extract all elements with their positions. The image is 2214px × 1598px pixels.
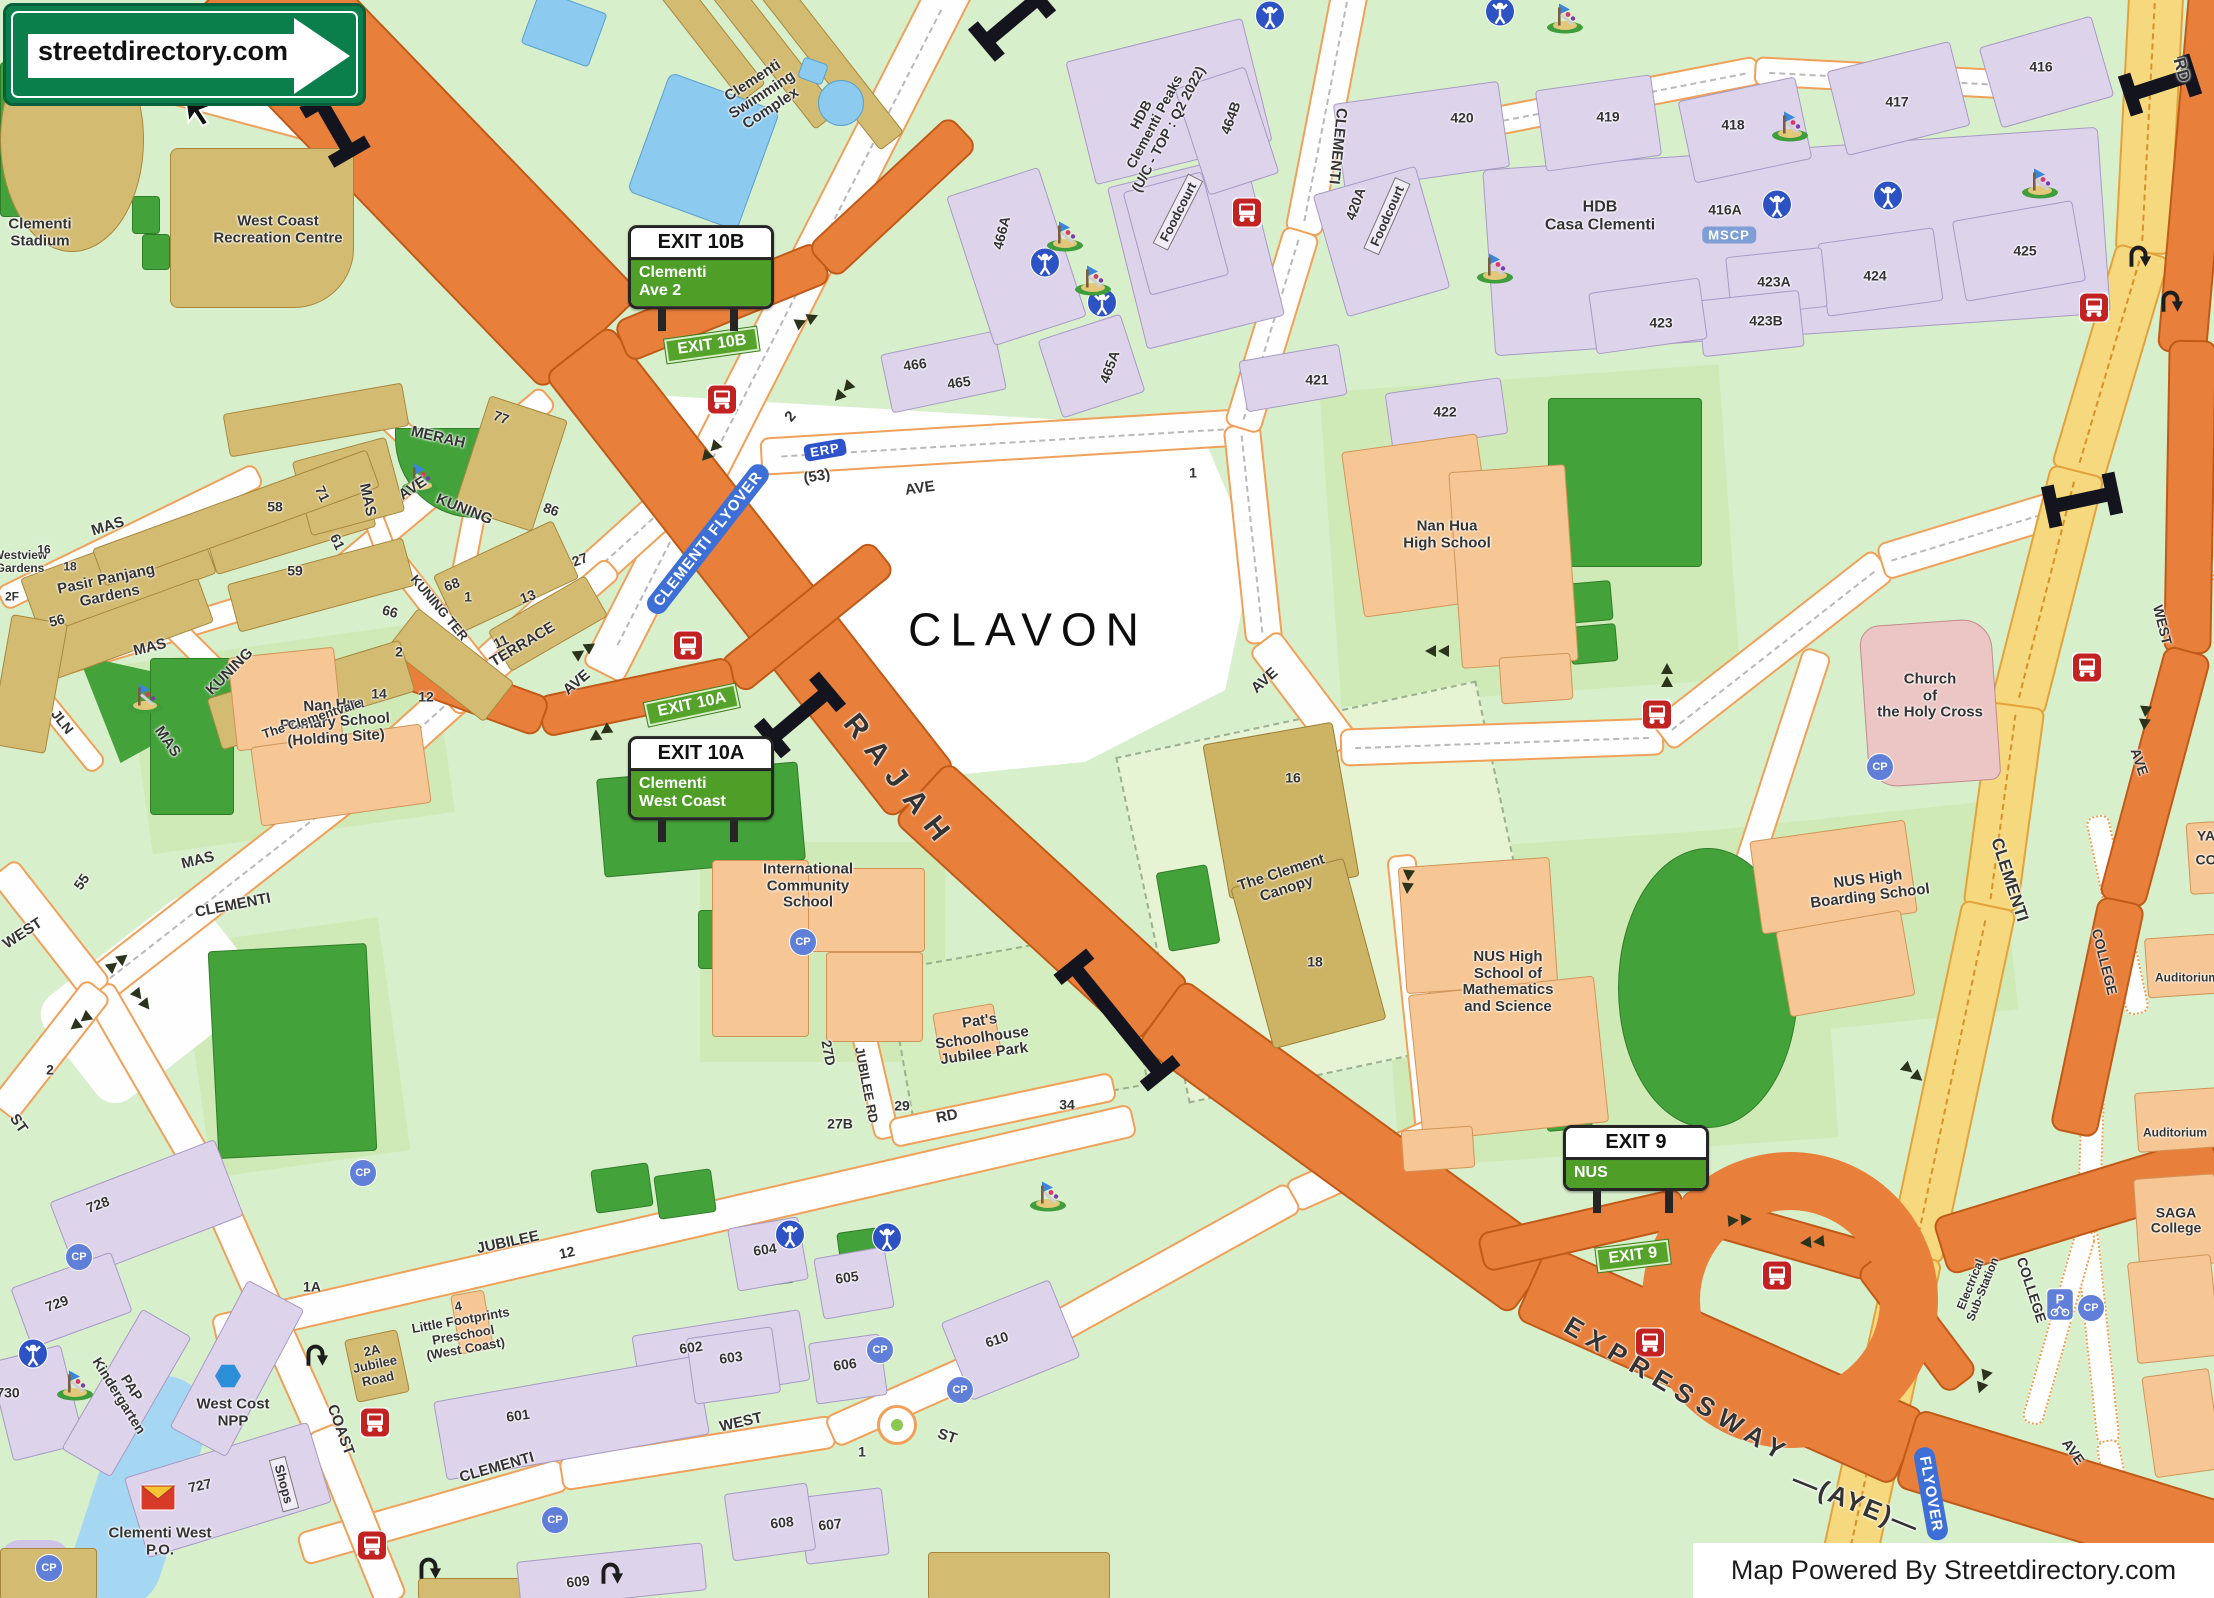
map-label: 18 <box>63 560 76 573</box>
community-icon[interactable] <box>1873 181 1903 216</box>
building <box>1401 1126 1476 1173</box>
exit-sign-post <box>730 820 738 842</box>
map-label: 18 <box>1307 954 1323 969</box>
road-center-line <box>2141 0 2156 241</box>
streetdirectory-logo[interactable]: streetdirectory.com <box>3 3 366 106</box>
bus-stop-icon[interactable] <box>360 1408 390 1443</box>
map-label: 604 <box>752 1241 777 1259</box>
roundabout <box>877 1405 917 1445</box>
building <box>1037 314 1145 419</box>
exit-sign: EXIT 10AClementi West Coast <box>628 736 768 820</box>
map-label: 419 <box>1596 109 1619 124</box>
map-label: West Cost NPP <box>196 1397 269 1430</box>
map-label: 16 <box>37 543 50 556</box>
exit-sign-destination: Clementi Ave 2 <box>631 257 771 306</box>
community-icon[interactable] <box>775 1220 805 1255</box>
map-label: 2A Jubilee Road <box>349 1339 402 1390</box>
map-label: 1 <box>858 1444 866 1459</box>
map-label: 1 <box>464 589 472 604</box>
building <box>826 952 923 1042</box>
map-label: 1A <box>303 1279 321 1294</box>
map-label: 422 <box>1433 404 1456 419</box>
carpark-icon[interactable]: CP <box>2077 1294 2105 1322</box>
building <box>928 1552 1110 1598</box>
map-label: NUS High School of Mathematics and Scien… <box>1463 949 1554 1015</box>
exit-sign-post <box>1665 1191 1673 1213</box>
community-icon[interactable] <box>18 1339 48 1374</box>
map-label: International Community School <box>763 861 853 911</box>
map-label: 59 <box>287 563 303 578</box>
map-label: 416 <box>2029 59 2052 74</box>
building <box>818 80 864 126</box>
carpark-icon[interactable]: CP <box>65 1243 93 1271</box>
map-label: 2 <box>46 1062 54 1077</box>
map-label: 609 <box>566 1573 591 1591</box>
map-label: 417 <box>1885 94 1908 109</box>
map-label: 605 <box>834 1269 859 1287</box>
exit-sign-title: EXIT 10A <box>631 739 771 768</box>
map-label: Clementi Stadium <box>8 217 71 250</box>
map-label: 4 Little Footprints Preschool (West Coas… <box>408 1291 515 1364</box>
exit-sign-post <box>730 309 738 331</box>
map-label: CLAVON <box>908 605 1148 656</box>
map-label: 466 <box>902 356 927 374</box>
carpark-icon[interactable]: CP <box>866 1336 894 1364</box>
sports-field <box>142 234 170 270</box>
exit-sign-title: EXIT 9 <box>1566 1128 1706 1157</box>
carpark-icon[interactable]: CP <box>789 928 817 956</box>
exit-sign-post <box>658 309 666 331</box>
traffic-arrow-icon <box>1425 645 1449 657</box>
bus-stop-icon[interactable] <box>673 631 703 666</box>
building <box>2127 1254 2214 1364</box>
exit-sign-post <box>1593 1191 1601 1213</box>
community-icon[interactable] <box>1255 1 1285 36</box>
building <box>2144 934 2214 999</box>
exit-sign-destination: NUS <box>1566 1157 1706 1188</box>
building <box>1448 464 1578 669</box>
map-attribution[interactable]: Map Powered By Streetdirectory.com <box>1693 1543 2214 1598</box>
map-label: 425 <box>2013 243 2036 258</box>
community-icon[interactable] <box>1762 190 1792 225</box>
map-label: 34 <box>1059 1097 1075 1112</box>
uturn-arrow-icon <box>596 1559 624 1592</box>
traffic-arrow-icon <box>1973 1369 1992 1396</box>
map-label: 602 <box>678 1339 703 1357</box>
playground-icon[interactable] <box>125 682 165 719</box>
traffic-arrow-icon <box>1800 1235 1825 1249</box>
map-label: 465 <box>946 374 971 392</box>
exit-sign-post <box>658 820 666 842</box>
logo-arrow-head-icon <box>294 18 350 94</box>
community-icon[interactable] <box>872 1223 902 1258</box>
carpark-icon[interactable]: CP <box>1866 753 1894 781</box>
traffic-arrow-icon <box>1900 1061 1926 1086</box>
mscp-badge: MSCP <box>1702 227 1756 244</box>
map-label: 12 <box>558 1244 576 1262</box>
map-label: 2 <box>395 644 403 659</box>
map-label: CO <box>2196 852 2214 867</box>
road <box>2163 340 2214 655</box>
map-label: 86 <box>541 500 561 520</box>
attribution-text: Map Powered By Streetdirectory.com <box>1731 1555 2176 1586</box>
bus-stop-icon[interactable] <box>2079 293 2109 328</box>
map-label: 16 <box>1285 770 1301 785</box>
building <box>2141 1368 2214 1478</box>
map-label: 607 <box>818 1516 843 1534</box>
map-label: Auditorium <box>2143 1126 2207 1139</box>
map-label: 420 <box>1450 110 1473 125</box>
map-label: 14 <box>371 686 387 701</box>
map-label: 29 <box>894 1098 910 1113</box>
road-center-line <box>1355 737 1649 749</box>
uturn-arrow-icon <box>2156 287 2184 320</box>
traffic-arrow-icon <box>1661 663 1673 687</box>
exit-sign-box: EXIT 10BClementi Ave 2 <box>628 225 774 309</box>
playground-icon[interactable] <box>55 1369 95 1406</box>
map-label: 730 <box>0 1385 20 1400</box>
map-label: 423 <box>1649 315 1672 330</box>
building <box>520 0 607 68</box>
traffic-arrow-icon <box>831 379 856 405</box>
map-label: 66 <box>380 603 399 622</box>
map-label: Church of the Holy Cross <box>1877 671 1983 721</box>
svg-text:P: P <box>2056 1292 2065 1307</box>
bus-stop-icon[interactable] <box>707 385 737 420</box>
playground-icon[interactable] <box>1545 2 1585 39</box>
carpark-icon[interactable]: CP <box>541 1506 569 1534</box>
traffic-arrow-icon <box>2138 706 2152 731</box>
map-label: West Coast Recreation Centre <box>213 214 342 247</box>
building <box>880 330 1007 413</box>
map-label: 2F <box>5 590 19 603</box>
map-label: Nan Hua High School <box>1403 519 1491 552</box>
bus-stop-icon[interactable] <box>357 1531 387 1566</box>
map-label: 606 <box>832 1356 857 1374</box>
map-label: YA <box>2197 828 2214 843</box>
exit-sign-box: EXIT 10AClementi West Coast <box>628 736 774 820</box>
map-label: 27B <box>827 1116 853 1131</box>
sports-field <box>1548 398 1702 567</box>
map-label: 12 <box>418 689 434 704</box>
map-label: Auditorium <box>2155 971 2214 984</box>
parking-bicycle-icon[interactable]: P <box>2047 1289 2074 1326</box>
playground-icon[interactable] <box>1073 264 1113 301</box>
map-label: SAGA College <box>2151 1206 2202 1237</box>
map-label: 1 <box>1189 465 1197 480</box>
map-label: 421 <box>1305 372 1328 387</box>
exit-sign-title: EXIT 10B <box>631 228 771 257</box>
map-label: 603 <box>718 1349 743 1367</box>
bus-stop-icon[interactable] <box>1762 1261 1792 1296</box>
carpark-icon[interactable]: CP <box>349 1159 377 1187</box>
map-label: HDB Casa Clementi <box>1545 198 1655 233</box>
map-label: ST <box>935 1426 958 1448</box>
sports-field <box>132 196 160 234</box>
building <box>946 167 1087 346</box>
map-label: 58 <box>267 499 283 514</box>
sports-field <box>590 1162 654 1214</box>
exit-sign-destination: Clementi West Coast <box>631 768 771 817</box>
road-center-line <box>1241 435 1264 633</box>
map-label: 423B <box>1749 313 1782 328</box>
playground-icon[interactable] <box>1028 1180 1068 1217</box>
playground-icon[interactable] <box>1475 252 1515 289</box>
building <box>1498 653 1573 705</box>
carpark-icon[interactable]: CP <box>946 1376 974 1404</box>
uturn-arrow-icon <box>301 1341 329 1374</box>
sports-field <box>653 1168 717 1220</box>
map-label: 608 <box>770 1514 795 1532</box>
bus-stop-icon[interactable] <box>1642 700 1672 735</box>
sports-field <box>208 943 378 1159</box>
map-label: 601 <box>505 1407 530 1425</box>
map-label: MAS <box>180 849 216 873</box>
playground-icon[interactable] <box>1045 220 1085 257</box>
bus-stop-icon[interactable] <box>1232 198 1262 233</box>
exit-sign: EXIT 9NUS <box>1563 1125 1703 1191</box>
map-label: Clementi West P.O. <box>108 1526 211 1559</box>
map-label: 27D <box>818 1039 838 1067</box>
playground-icon[interactable] <box>1770 110 1810 147</box>
carpark-icon[interactable]: CP <box>35 1554 63 1582</box>
exit-sign-box: EXIT 9NUS <box>1563 1125 1709 1191</box>
building <box>2134 1087 2214 1153</box>
map-label: 418 <box>1721 117 1744 132</box>
map-label: COLLEGE <box>2013 1255 2049 1324</box>
exit-sign: EXIT 10BClementi Ave 2 <box>628 225 768 309</box>
traffic-arrow-icon <box>1401 870 1415 895</box>
traffic-arrow-icon <box>1728 1213 1753 1227</box>
uturn-arrow-icon <box>414 1554 442 1587</box>
community-icon[interactable] <box>1485 0 1515 32</box>
uturn-arrow-icon <box>2124 242 2152 275</box>
map-label: 416A <box>1708 202 1741 217</box>
map-label: 423A <box>1757 274 1790 289</box>
bridge-marker <box>968 0 1056 62</box>
map-label: 55 <box>71 871 93 893</box>
map-canvas[interactable]: PCPCPCPCPCPCPCPCPCPCLEMENTI FLYOVERFLYOV… <box>0 0 2214 1598</box>
bus-stop-icon[interactable] <box>2072 653 2102 688</box>
playground-icon[interactable] <box>2020 167 2060 204</box>
map-label: 424 <box>1863 268 1886 283</box>
post-office-icon[interactable] <box>140 1484 176 1516</box>
logo-text: streetdirectory.com <box>32 36 294 67</box>
